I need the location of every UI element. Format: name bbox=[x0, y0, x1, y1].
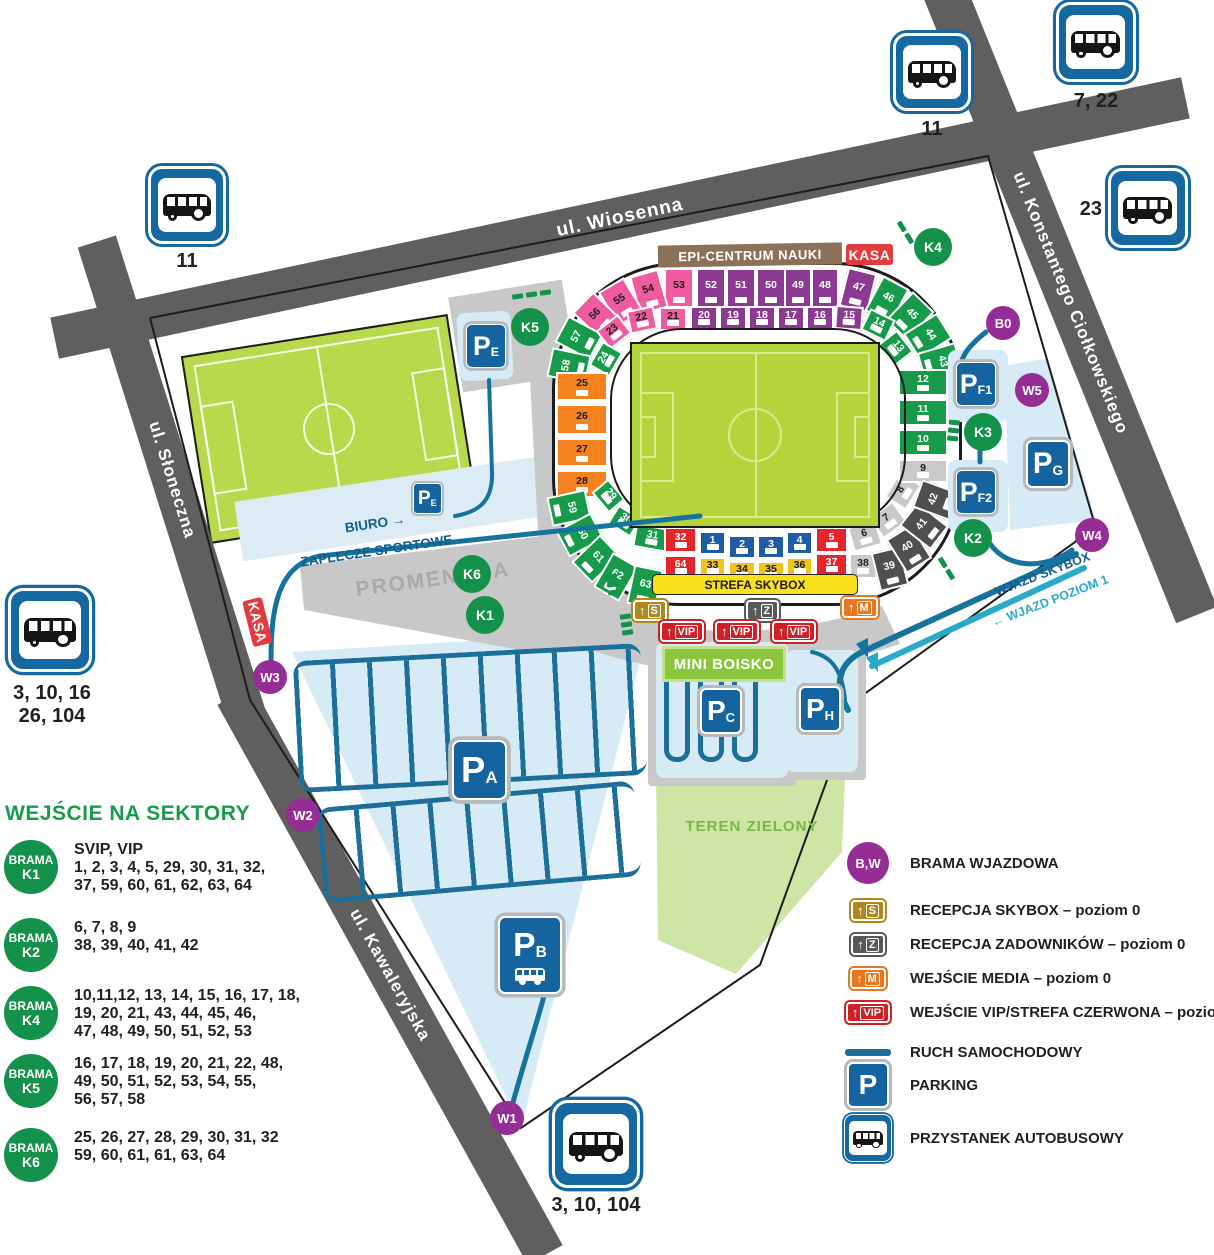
stadium-pitch bbox=[630, 342, 880, 528]
road-label-slonecza: ul. Słoneczna bbox=[144, 419, 200, 541]
legend-entry: ↑MWEJŚCIE MEDIA – poziom 0 bbox=[838, 968, 1111, 989]
legend-label: RECEPCJA SKYBOX – poziom 0 bbox=[910, 902, 1140, 919]
sector-15: 15 bbox=[834, 305, 864, 331]
sector-17: 17 bbox=[777, 306, 805, 330]
parking-sign-pg: PG bbox=[1026, 440, 1070, 488]
parking-sign-pf2: PF2 bbox=[956, 470, 996, 514]
sector-25: 25 bbox=[556, 372, 608, 401]
bus-stop-sign bbox=[1108, 168, 1188, 248]
parking-sub: H bbox=[825, 708, 834, 723]
media-entrance-icon: ↑M bbox=[842, 597, 878, 618]
vip-entrance-icon: ↑VIP bbox=[715, 621, 759, 642]
sector-27: 27 bbox=[556, 438, 608, 467]
sector-52: 52 bbox=[696, 268, 726, 308]
parking-sign-pa: PA bbox=[452, 740, 507, 800]
gate-k4: K4 bbox=[914, 228, 952, 266]
up-arrow-icon: ↑ bbox=[721, 625, 728, 638]
brama-circle-k6: BRAMAK6 bbox=[4, 1128, 58, 1182]
sector-3: 3 bbox=[757, 535, 785, 559]
brama-circle-k4: BRAMAK4 bbox=[4, 986, 58, 1040]
up-arrow-icon: ↑ bbox=[666, 625, 673, 638]
legend-entry: B,WBRAMA WJAZDOWA bbox=[838, 842, 1059, 884]
up-arrow-icon: ↑ bbox=[848, 601, 855, 614]
kasa-sign-left: KASA bbox=[242, 597, 273, 647]
sector-list: 10,11,12, 13, 14, 15, 16, 17, 18,19, 20,… bbox=[74, 986, 300, 1041]
bus-icon bbox=[515, 968, 545, 981]
legend-entry: ↑SRECEPCJA SKYBOX – poziom 0 bbox=[838, 900, 1140, 921]
legend-entry-k4: BRAMAK410,11,12, 13, 14, 15, 16, 17, 18,… bbox=[4, 986, 300, 1041]
bus-icon bbox=[24, 618, 76, 642]
bus-stop-sign bbox=[1056, 2, 1136, 82]
legend-label: BRAMA WJAZDOWA bbox=[910, 855, 1059, 872]
road-label-wiosenna: ul. Wiosenna bbox=[555, 194, 686, 242]
gate-vip-icon: ↑VIP bbox=[846, 1002, 890, 1023]
bus-stop-icon bbox=[844, 1114, 892, 1162]
bus-routes-label: 23 bbox=[1058, 198, 1102, 221]
sector-list: SVIP, VIP1, 2, 3, 4, 5, 29, 30, 31, 32,3… bbox=[74, 840, 265, 895]
sector-49: 49 bbox=[784, 268, 812, 308]
parking-sub: E bbox=[491, 345, 499, 359]
sector-4: 4 bbox=[786, 531, 813, 555]
entrance-letter: VIP bbox=[675, 625, 699, 639]
legend-label: RECEPCJA ZADOWNIKÓW – poziom 0 bbox=[910, 936, 1185, 953]
entrance-letter: M bbox=[857, 601, 872, 615]
kasa-sign-top: KASA bbox=[846, 244, 893, 265]
gate-w1: W1 bbox=[490, 1101, 524, 1135]
sector-list: 16, 17, 18, 19, 20, 21, 22, 48,49, 50, 5… bbox=[74, 1054, 283, 1109]
gate-m-icon: ↑M bbox=[850, 968, 886, 989]
brama-circle-k2: BRAMAK2 bbox=[4, 918, 58, 972]
gate-b0: B0 bbox=[986, 306, 1020, 340]
sector-16: 16 bbox=[806, 306, 834, 330]
sector-32: 32 bbox=[664, 527, 697, 553]
skybox-entrance-icon: ↑S bbox=[633, 600, 667, 621]
gate-k1: K1 bbox=[466, 596, 504, 634]
parking-sign-ph: PH bbox=[799, 686, 841, 732]
pitch-goal-left bbox=[640, 416, 656, 458]
gate-k6: K6 bbox=[453, 555, 491, 593]
parking-letter: P bbox=[461, 752, 485, 788]
legend-entry: ↑VIPWEJŚCIE VIP/STREFA CZERWONA – poziom… bbox=[838, 1002, 1214, 1023]
parking-letter: P bbox=[418, 489, 431, 508]
parking-sub: B bbox=[536, 944, 547, 962]
parking-letter: P bbox=[960, 371, 978, 398]
parking-sub: A bbox=[485, 768, 497, 788]
bus-icon bbox=[908, 61, 956, 83]
pitch-goal-right bbox=[854, 416, 870, 458]
legend-entry-k5: BRAMAK516, 17, 18, 19, 20, 21, 22, 48,49… bbox=[4, 1054, 283, 1109]
parking-letter: P bbox=[1033, 449, 1053, 478]
route-line-icon bbox=[845, 1049, 891, 1056]
legend-label: WEJŚCIE VIP/STREFA CZERWONA – poziom 1 bbox=[910, 1004, 1214, 1021]
sector-51: 51 bbox=[726, 268, 756, 308]
bus-routes-label: 3, 10, 104 bbox=[540, 1194, 652, 1217]
up-arrow-icon: ↑ bbox=[752, 604, 759, 617]
entrance-letter: VIP bbox=[787, 625, 811, 639]
parking-sign-pf1: PF1 bbox=[956, 362, 996, 406]
parking-sign-pc: PC bbox=[700, 688, 742, 734]
legend-entry-k6: BRAMAK625, 26, 27, 28, 29, 30, 31, 3259,… bbox=[4, 1128, 279, 1182]
gate-w3: W3 bbox=[253, 660, 287, 694]
sector-list: 6, 7, 8, 938, 39, 40, 41, 42 bbox=[74, 918, 199, 972]
gate-k3: K3 bbox=[964, 413, 1002, 451]
epi-centrum-nauki-label: EPI-CENTRUM NAUKI bbox=[658, 242, 842, 267]
bus-routes-line: 3, 10, 16 bbox=[0, 682, 104, 705]
parking-letter: P bbox=[513, 929, 535, 963]
legend-label: RUCH SAMOCHODOWY bbox=[910, 1044, 1083, 1061]
bus-routes-label: 7, 22 bbox=[1056, 90, 1136, 113]
stadium-area-map: ul. Słoneczna ul. Kawaleryjska ul. Wiose… bbox=[0, 0, 1214, 1255]
bus-routes-label: 11 bbox=[148, 250, 226, 273]
parking-sign-pe-small: PE bbox=[413, 483, 442, 514]
entrance-letter: S bbox=[648, 604, 661, 618]
road-label-kawaleryjska: ul. Kawaleryjska bbox=[345, 905, 434, 1044]
strefa-skybox-band: STREFA SKYBOX bbox=[652, 574, 858, 595]
bus-icon bbox=[1123, 197, 1172, 219]
turnstiles-k4 bbox=[897, 221, 914, 245]
turnstiles-k1 bbox=[620, 613, 634, 635]
parking-letter: P bbox=[806, 695, 825, 723]
sector-26: 26 bbox=[556, 404, 608, 435]
bus-stop-sign bbox=[8, 588, 92, 672]
bus-routes-label: 11 bbox=[893, 118, 971, 141]
legend-entry-k2: BRAMAK26, 7, 8, 938, 39, 40, 41, 42 bbox=[4, 918, 199, 972]
sector-list: 25, 26, 27, 28, 29, 30, 31, 3259, 60, 61… bbox=[74, 1128, 279, 1182]
gate-s-icon: ↑S bbox=[851, 900, 885, 921]
legend-left-title: WEJŚCIE NA SEKTORY bbox=[5, 802, 250, 826]
entrance-letter: Z bbox=[761, 604, 774, 618]
gate-w4: W4 bbox=[1075, 518, 1109, 552]
sector-19: 19 bbox=[719, 306, 747, 330]
parking-sub: E bbox=[431, 498, 437, 508]
entrance-letter: VIP bbox=[730, 625, 754, 639]
parking-sub: C bbox=[726, 710, 735, 725]
mini-boisko-label: MINI BOISKO bbox=[662, 646, 786, 682]
sector-5: 5 bbox=[815, 527, 848, 553]
gate-w5: W5 bbox=[1015, 373, 1049, 407]
gate-k5: K5 bbox=[511, 308, 549, 346]
turnstiles-k3 bbox=[947, 419, 960, 441]
legend-label: WEJŚCIE MEDIA – poziom 0 bbox=[910, 970, 1111, 987]
parking-sub: G bbox=[1053, 463, 1064, 478]
gate-z-icon: ↑Z bbox=[851, 934, 884, 955]
brama-circle-k5: BRAMAK5 bbox=[4, 1054, 58, 1108]
vip-entrance-icon: ↑VIP bbox=[660, 621, 704, 642]
sector-53: 53 bbox=[664, 268, 694, 308]
parking-letter: P bbox=[707, 697, 726, 725]
up-arrow-icon: ↑ bbox=[778, 625, 785, 638]
parking-sign-pb: PB bbox=[498, 916, 562, 994]
sector-1: 1 bbox=[699, 531, 726, 555]
up-arrow-icon: ↑ bbox=[639, 604, 646, 617]
bus-stop-sign bbox=[893, 33, 971, 111]
sector-22: 22 bbox=[626, 305, 658, 334]
bus-stop-sign bbox=[148, 166, 226, 244]
parking-sign-icon: P bbox=[847, 1062, 889, 1108]
parking-sub: F2 bbox=[978, 491, 992, 505]
bus-routes-line: 26, 104 bbox=[0, 705, 104, 728]
sector-20: 20 bbox=[690, 306, 718, 330]
pitch-center-circle bbox=[728, 408, 782, 462]
bus-icon bbox=[163, 194, 211, 216]
zadowniki-entrance-icon: ↑Z bbox=[746, 600, 779, 621]
brama-circle-k1: BRAMAK1 bbox=[4, 840, 58, 894]
legend-entry: RUCH SAMOCHODOWY bbox=[838, 1044, 1083, 1061]
sector-2: 2 bbox=[728, 535, 756, 559]
sector-48: 48 bbox=[811, 268, 839, 308]
parking-letter: P bbox=[473, 333, 491, 360]
legend-entry: PPARKING bbox=[838, 1062, 978, 1108]
parking-letter: P bbox=[960, 479, 978, 506]
parking-sub: F1 bbox=[978, 383, 992, 397]
bus-stop-sign bbox=[552, 1100, 640, 1188]
legend-entry: ↑ZRECEPCJA ZADOWNIKÓW – poziom 0 bbox=[838, 934, 1185, 955]
promenada-label: PROMENADA bbox=[327, 554, 538, 605]
teren-zielony-label: TEREN ZIELONY bbox=[672, 818, 832, 835]
bus-icon bbox=[1071, 31, 1120, 53]
stadium: 5354555657585251504948474645444323222120… bbox=[552, 262, 966, 608]
gate-w2: W2 bbox=[286, 798, 320, 832]
sector-50: 50 bbox=[756, 268, 786, 308]
bus-routes-label: 3, 10, 16 26, 104 bbox=[0, 682, 104, 728]
legend-entry: PRZYSTANEK AUTOBUSOWY bbox=[838, 1114, 1124, 1162]
brama-wjazdowa-icon: B,W bbox=[847, 842, 889, 884]
legend-label: PARKING bbox=[910, 1077, 978, 1094]
vip-entrance-icon: ↑VIP bbox=[772, 621, 816, 642]
gate-k2: K2 bbox=[954, 519, 992, 557]
legend-entry-k1: BRAMAK1SVIP, VIP1, 2, 3, 4, 5, 29, 30, 3… bbox=[4, 840, 265, 895]
bus-icon bbox=[569, 1132, 623, 1157]
parking-sign-pe: PE bbox=[466, 324, 506, 368]
sector-18: 18 bbox=[748, 306, 776, 330]
legend-label: PRZYSTANEK AUTOBUSOWY bbox=[910, 1130, 1124, 1147]
